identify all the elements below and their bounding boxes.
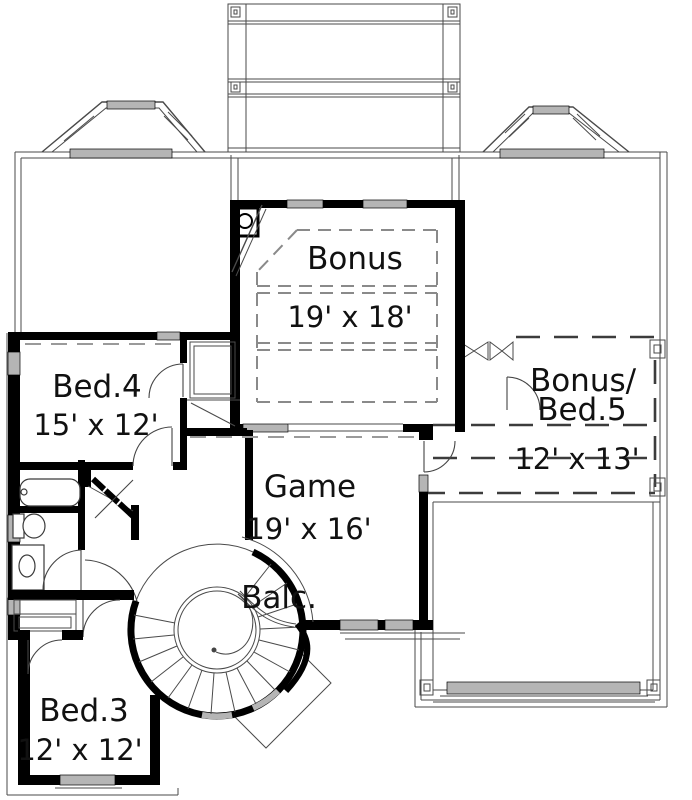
bed4-dims: 15' x 12' [33,408,158,442]
bathroom-door [43,550,81,590]
linen-closet-door [93,479,134,518]
balcony-label: Balc. [241,580,317,616]
bathtub [20,479,80,506]
vestibule-door [83,600,120,637]
bed4-label: Bed.4 [52,369,142,405]
vanity-sink [12,545,44,590]
bed3-door [28,640,62,674]
bonus-window-1 [287,200,323,208]
stair-window-2 [202,715,232,716]
bed3-closet-shelves [14,600,76,631]
bonus-window-2 [363,200,407,208]
bay-left-base-window [70,149,172,158]
bed4-closet-door [149,364,183,398]
bonus-bed5-label-line2: Bed.5 [537,392,627,428]
chase-circle [238,214,252,228]
game-window-bottom-1 [340,620,378,630]
game-bed5-door [424,441,455,472]
floor-plan-page: Bonus/ Bed.5 12' x 13' Bo [0,0,692,800]
bonus-room: Bonus 19' x 18' [230,200,465,432]
bed3-window [60,775,115,785]
bed4-window-left [8,352,20,375]
toilet [13,514,45,538]
bay-window-left [42,101,205,158]
deck-railing [228,4,460,200]
bay-window-right [483,106,629,158]
bonus-dims: 19' x 18' [287,300,412,334]
bathroom [8,460,133,600]
attic-vent-marks [460,342,513,360]
game-label: Game [264,469,356,505]
bay-left-window [107,101,155,109]
bonus-bed5-dims: 12' x 13' [514,442,639,476]
bay-right-base-window [500,149,604,158]
bed3-dims: 12' x 12' [17,733,142,767]
bed4-window-top [157,332,180,340]
floor-plan-drawing: Bonus/ Bed.5 12' x 13' Bo [0,0,692,800]
game-window-right [419,475,428,492]
bed3-label: Bed.3 [39,693,129,729]
rear-window-band [447,682,640,694]
bonus-label: Bonus [307,241,403,277]
bay-right-window [533,106,569,114]
game-dims: 19' x 16' [246,512,371,546]
spiral-staircase: Balc. [131,537,317,716]
game-window-bottom-2 [385,620,413,630]
